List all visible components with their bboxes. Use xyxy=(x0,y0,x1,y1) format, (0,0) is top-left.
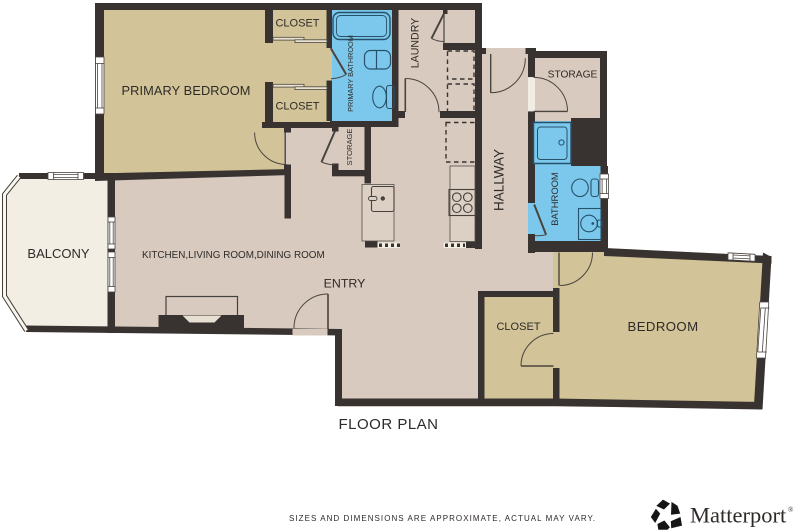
svg-text:ENTRY: ENTRY xyxy=(324,277,366,291)
svg-text:BATHROOM: BATHROOM xyxy=(549,172,560,226)
svg-text:BEDROOM: BEDROOM xyxy=(628,319,699,334)
svg-text:Matterport: Matterport xyxy=(690,503,787,528)
svg-text:KITCHEN,LIVING ROOM,DINING ROO: KITCHEN,LIVING ROOM,DINING ROOM xyxy=(142,250,325,261)
svg-text:LAUNDRY: LAUNDRY xyxy=(409,18,421,68)
svg-text:HALLWAY: HALLWAY xyxy=(492,149,507,211)
svg-text:PRIMARY BATHROOM: PRIMARY BATHROOM xyxy=(346,35,355,112)
svg-text:CLOSET: CLOSET xyxy=(275,101,319,113)
svg-text:CLOSET: CLOSET xyxy=(275,18,319,30)
svg-text:®: ® xyxy=(788,506,794,514)
svg-text:PRIMARY BEDROOM: PRIMARY BEDROOM xyxy=(121,83,250,98)
svg-text:FLOOR PLAN: FLOOR PLAN xyxy=(338,416,438,433)
svg-text:SIZES AND DIMENSIONS ARE APPRO: SIZES AND DIMENSIONS ARE APPROXIMATE, AC… xyxy=(289,514,596,523)
svg-text:BALCONY: BALCONY xyxy=(27,246,89,261)
svg-text:STORAGE: STORAGE xyxy=(345,129,354,166)
svg-text:CLOSET: CLOSET xyxy=(496,321,540,333)
svg-text:STORAGE: STORAGE xyxy=(548,70,598,81)
